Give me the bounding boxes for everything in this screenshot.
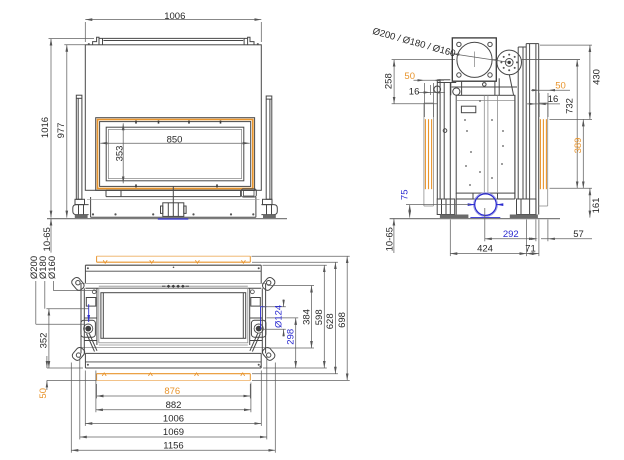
svg-text:1016: 1016 [40,117,51,138]
svg-text:Ø200 / Ø180 / Ø160: Ø200 / Ø180 / Ø160 [371,26,456,59]
svg-text:628: 628 [325,313,336,329]
svg-text:1006: 1006 [163,414,184,425]
svg-text:292: 292 [503,229,519,240]
svg-text:352: 352 [39,333,50,349]
svg-text:Ø160: Ø160 [47,256,58,279]
svg-text:50: 50 [404,71,415,82]
svg-text:850: 850 [167,134,183,145]
svg-text:50: 50 [555,80,566,91]
svg-text:10-65: 10-65 [42,227,53,251]
svg-text:876: 876 [164,386,180,397]
svg-text:Ø124: Ø124 [273,305,284,328]
svg-text:977: 977 [56,123,67,139]
svg-text:71: 71 [525,244,536,255]
svg-text:10-65: 10-65 [385,227,396,251]
svg-text:430: 430 [591,69,602,85]
svg-text:50: 50 [38,388,49,399]
svg-text:424: 424 [477,244,493,255]
svg-text:258: 258 [384,73,395,89]
svg-text:353: 353 [114,146,125,162]
svg-text:75: 75 [399,190,410,201]
svg-text:598: 598 [314,309,325,325]
svg-text:16: 16 [548,94,559,105]
svg-text:1156: 1156 [163,440,183,451]
svg-text:298: 298 [286,329,297,345]
svg-text:161: 161 [591,198,602,214]
svg-text:16: 16 [409,86,420,97]
svg-text:57: 57 [573,229,584,240]
svg-text:389: 389 [573,138,584,154]
svg-text:882: 882 [166,400,182,411]
svg-text:384: 384 [301,309,312,325]
svg-text:732: 732 [564,98,575,114]
svg-text:698: 698 [337,312,348,328]
svg-text:1069: 1069 [163,427,184,438]
svg-text:1006: 1006 [164,11,185,22]
